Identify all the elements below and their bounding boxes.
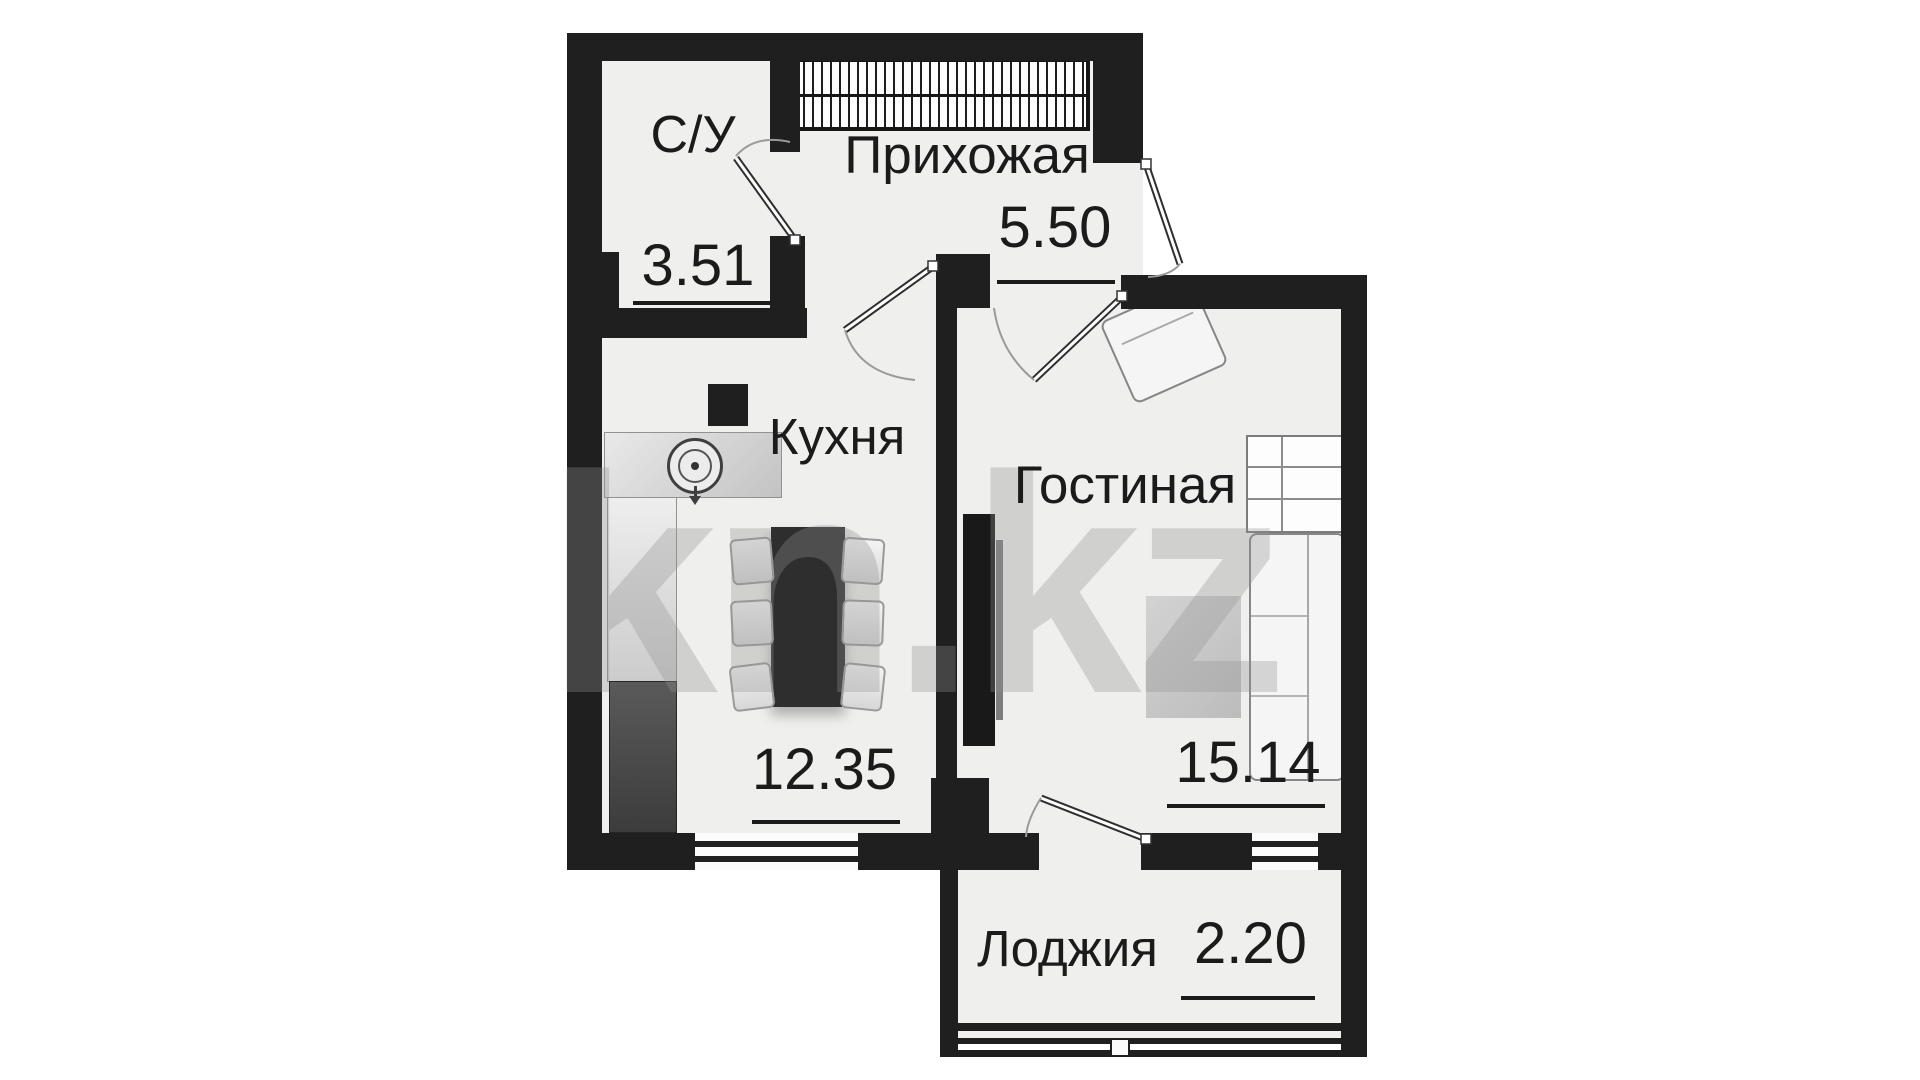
door-hinge bbox=[1141, 834, 1151, 844]
door-hinge bbox=[1141, 159, 1151, 169]
door-hinge bbox=[928, 261, 938, 271]
area-underline bbox=[1181, 996, 1315, 1000]
door-hinge bbox=[1117, 291, 1127, 301]
hallway-name-label: Прихожая bbox=[822, 128, 1112, 184]
living-room-door-arc bbox=[994, 308, 1034, 380]
hallway-area-label: 5.50 bbox=[980, 198, 1130, 259]
bathroom-area-label: 3.51 bbox=[618, 236, 778, 297]
area-underline bbox=[997, 280, 1115, 284]
loggia-area-label: 2.20 bbox=[1178, 914, 1323, 975]
bathroom-name-label: С/У bbox=[618, 108, 768, 163]
loggia-name-label: Лоджия bbox=[965, 922, 1170, 976]
door-hinge bbox=[790, 235, 800, 245]
bathroom-door-leaf bbox=[736, 158, 795, 240]
loggia-door-leaf bbox=[1041, 798, 1146, 839]
loggia-door-arc bbox=[1026, 798, 1041, 837]
living-room-name-label: Гостиная bbox=[980, 458, 1270, 514]
entrance-door-arc bbox=[1148, 264, 1180, 277]
area-underline bbox=[1167, 804, 1325, 808]
living-room-area-label: 15.14 bbox=[1163, 733, 1333, 794]
kitchen-door-arc bbox=[845, 330, 915, 380]
kitchen-area-label: 12.35 bbox=[742, 740, 907, 801]
entrance-door-leaf bbox=[1146, 164, 1180, 264]
area-underline bbox=[633, 301, 773, 305]
kitchen-name-label: Кухня bbox=[752, 410, 922, 464]
living-room-door-leaf bbox=[1034, 296, 1123, 380]
kitchen-door-leaf bbox=[845, 266, 934, 330]
area-underline bbox=[752, 820, 900, 824]
floor-plan: kn.kz С/У 3.51 Прихожая 5.50 Кухня 12.35… bbox=[0, 0, 1920, 1080]
